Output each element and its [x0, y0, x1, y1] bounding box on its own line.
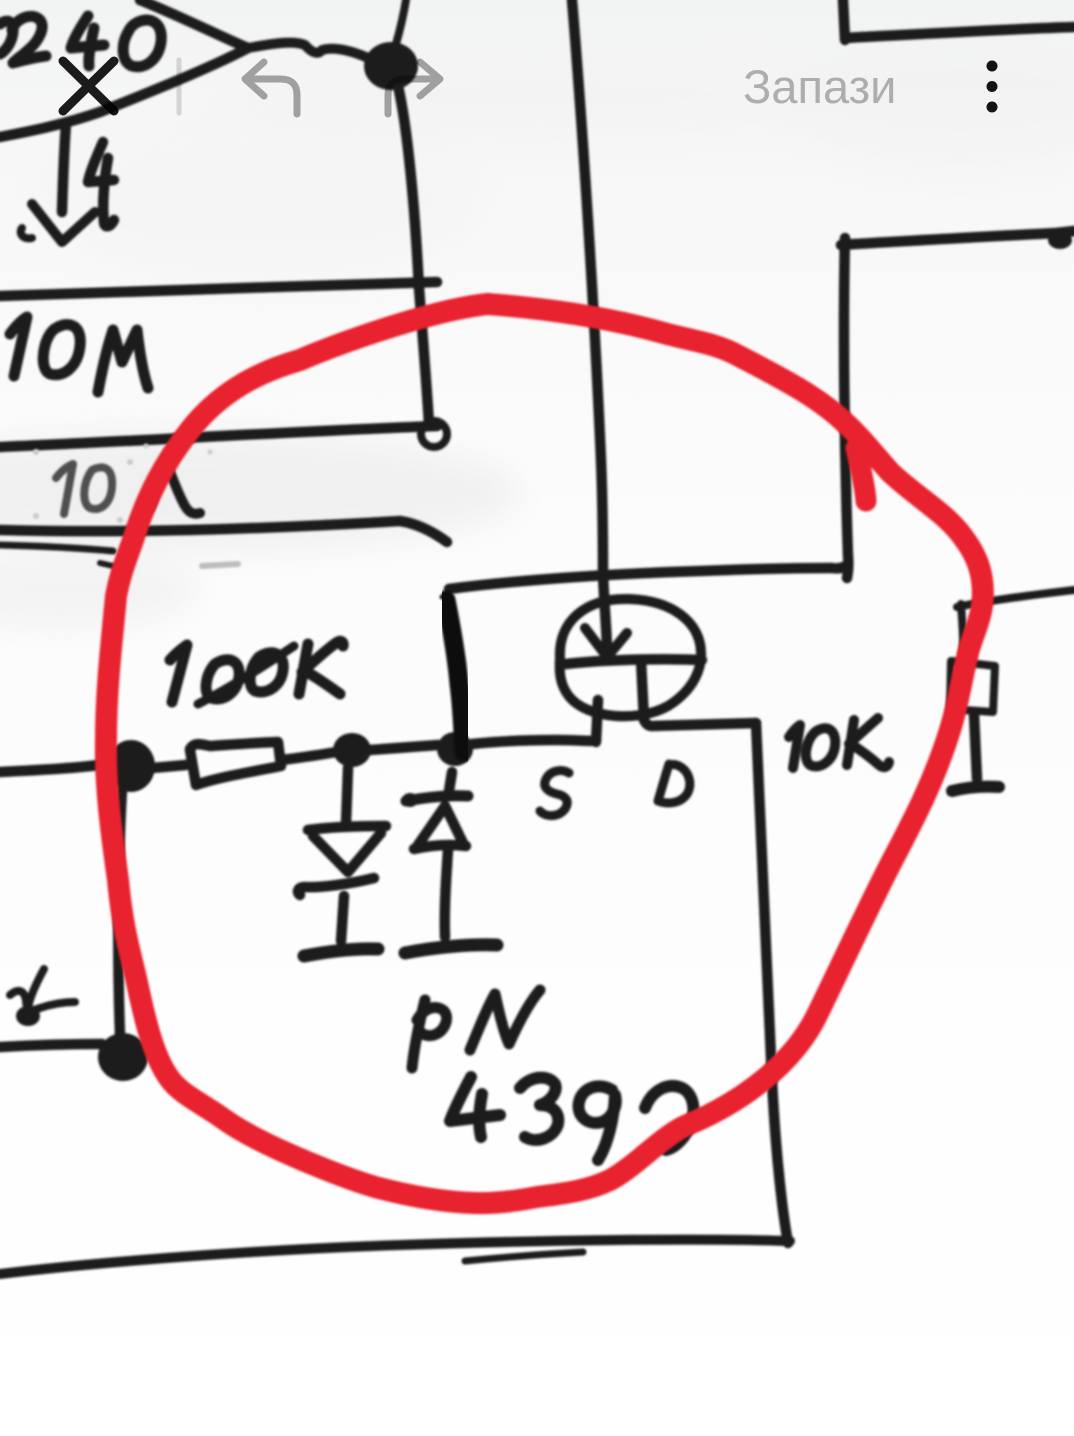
svg-text:Запази: Запази	[743, 60, 896, 113]
